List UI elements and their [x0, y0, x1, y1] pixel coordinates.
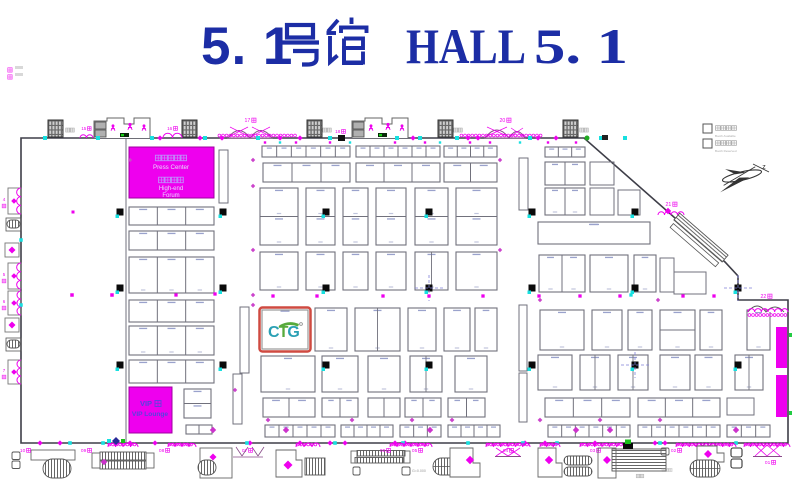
svg-text:04: 04 [503, 448, 509, 454]
svg-text:21: 21 [666, 202, 672, 208]
svg-text:01: 01 [765, 460, 771, 466]
svg-text:03: 03 [590, 448, 596, 454]
svg-text:G=0.000: G=0.000 [412, 469, 426, 473]
svg-text:Press Center: Press Center [153, 164, 189, 171]
svg-text:15: 15 [81, 126, 86, 131]
svg-text:5. 1: 5. 1 [201, 17, 293, 76]
svg-text:17: 17 [245, 118, 251, 124]
svg-text:Forum: Forum [162, 193, 179, 199]
svg-text:06: 06 [380, 448, 386, 454]
svg-text:20: 20 [500, 118, 506, 124]
svg-text:Booth Reserved: Booth Reserved [715, 149, 737, 153]
svg-text:05: 05 [412, 448, 418, 454]
svg-text:VIP: VIP [140, 399, 152, 408]
svg-text:Booth Available: Booth Available [715, 134, 736, 138]
svg-text:22: 22 [761, 294, 767, 300]
svg-text:09: 09 [81, 448, 87, 454]
svg-text:02: 02 [671, 448, 677, 454]
svg-text:10: 10 [20, 448, 26, 454]
svg-text:HALL: HALL [406, 18, 526, 74]
svg-text:16: 16 [167, 126, 173, 131]
svg-text:07: 07 [242, 448, 248, 454]
svg-text:08: 08 [159, 448, 165, 454]
svg-text:5. 1: 5. 1 [534, 18, 628, 74]
svg-text:18: 18 [335, 129, 341, 134]
svg-text:VIP Lounge: VIP Lounge [132, 411, 168, 418]
svg-text:CTG: CTG [268, 324, 299, 341]
svg-text:High-end: High-end [159, 186, 183, 192]
